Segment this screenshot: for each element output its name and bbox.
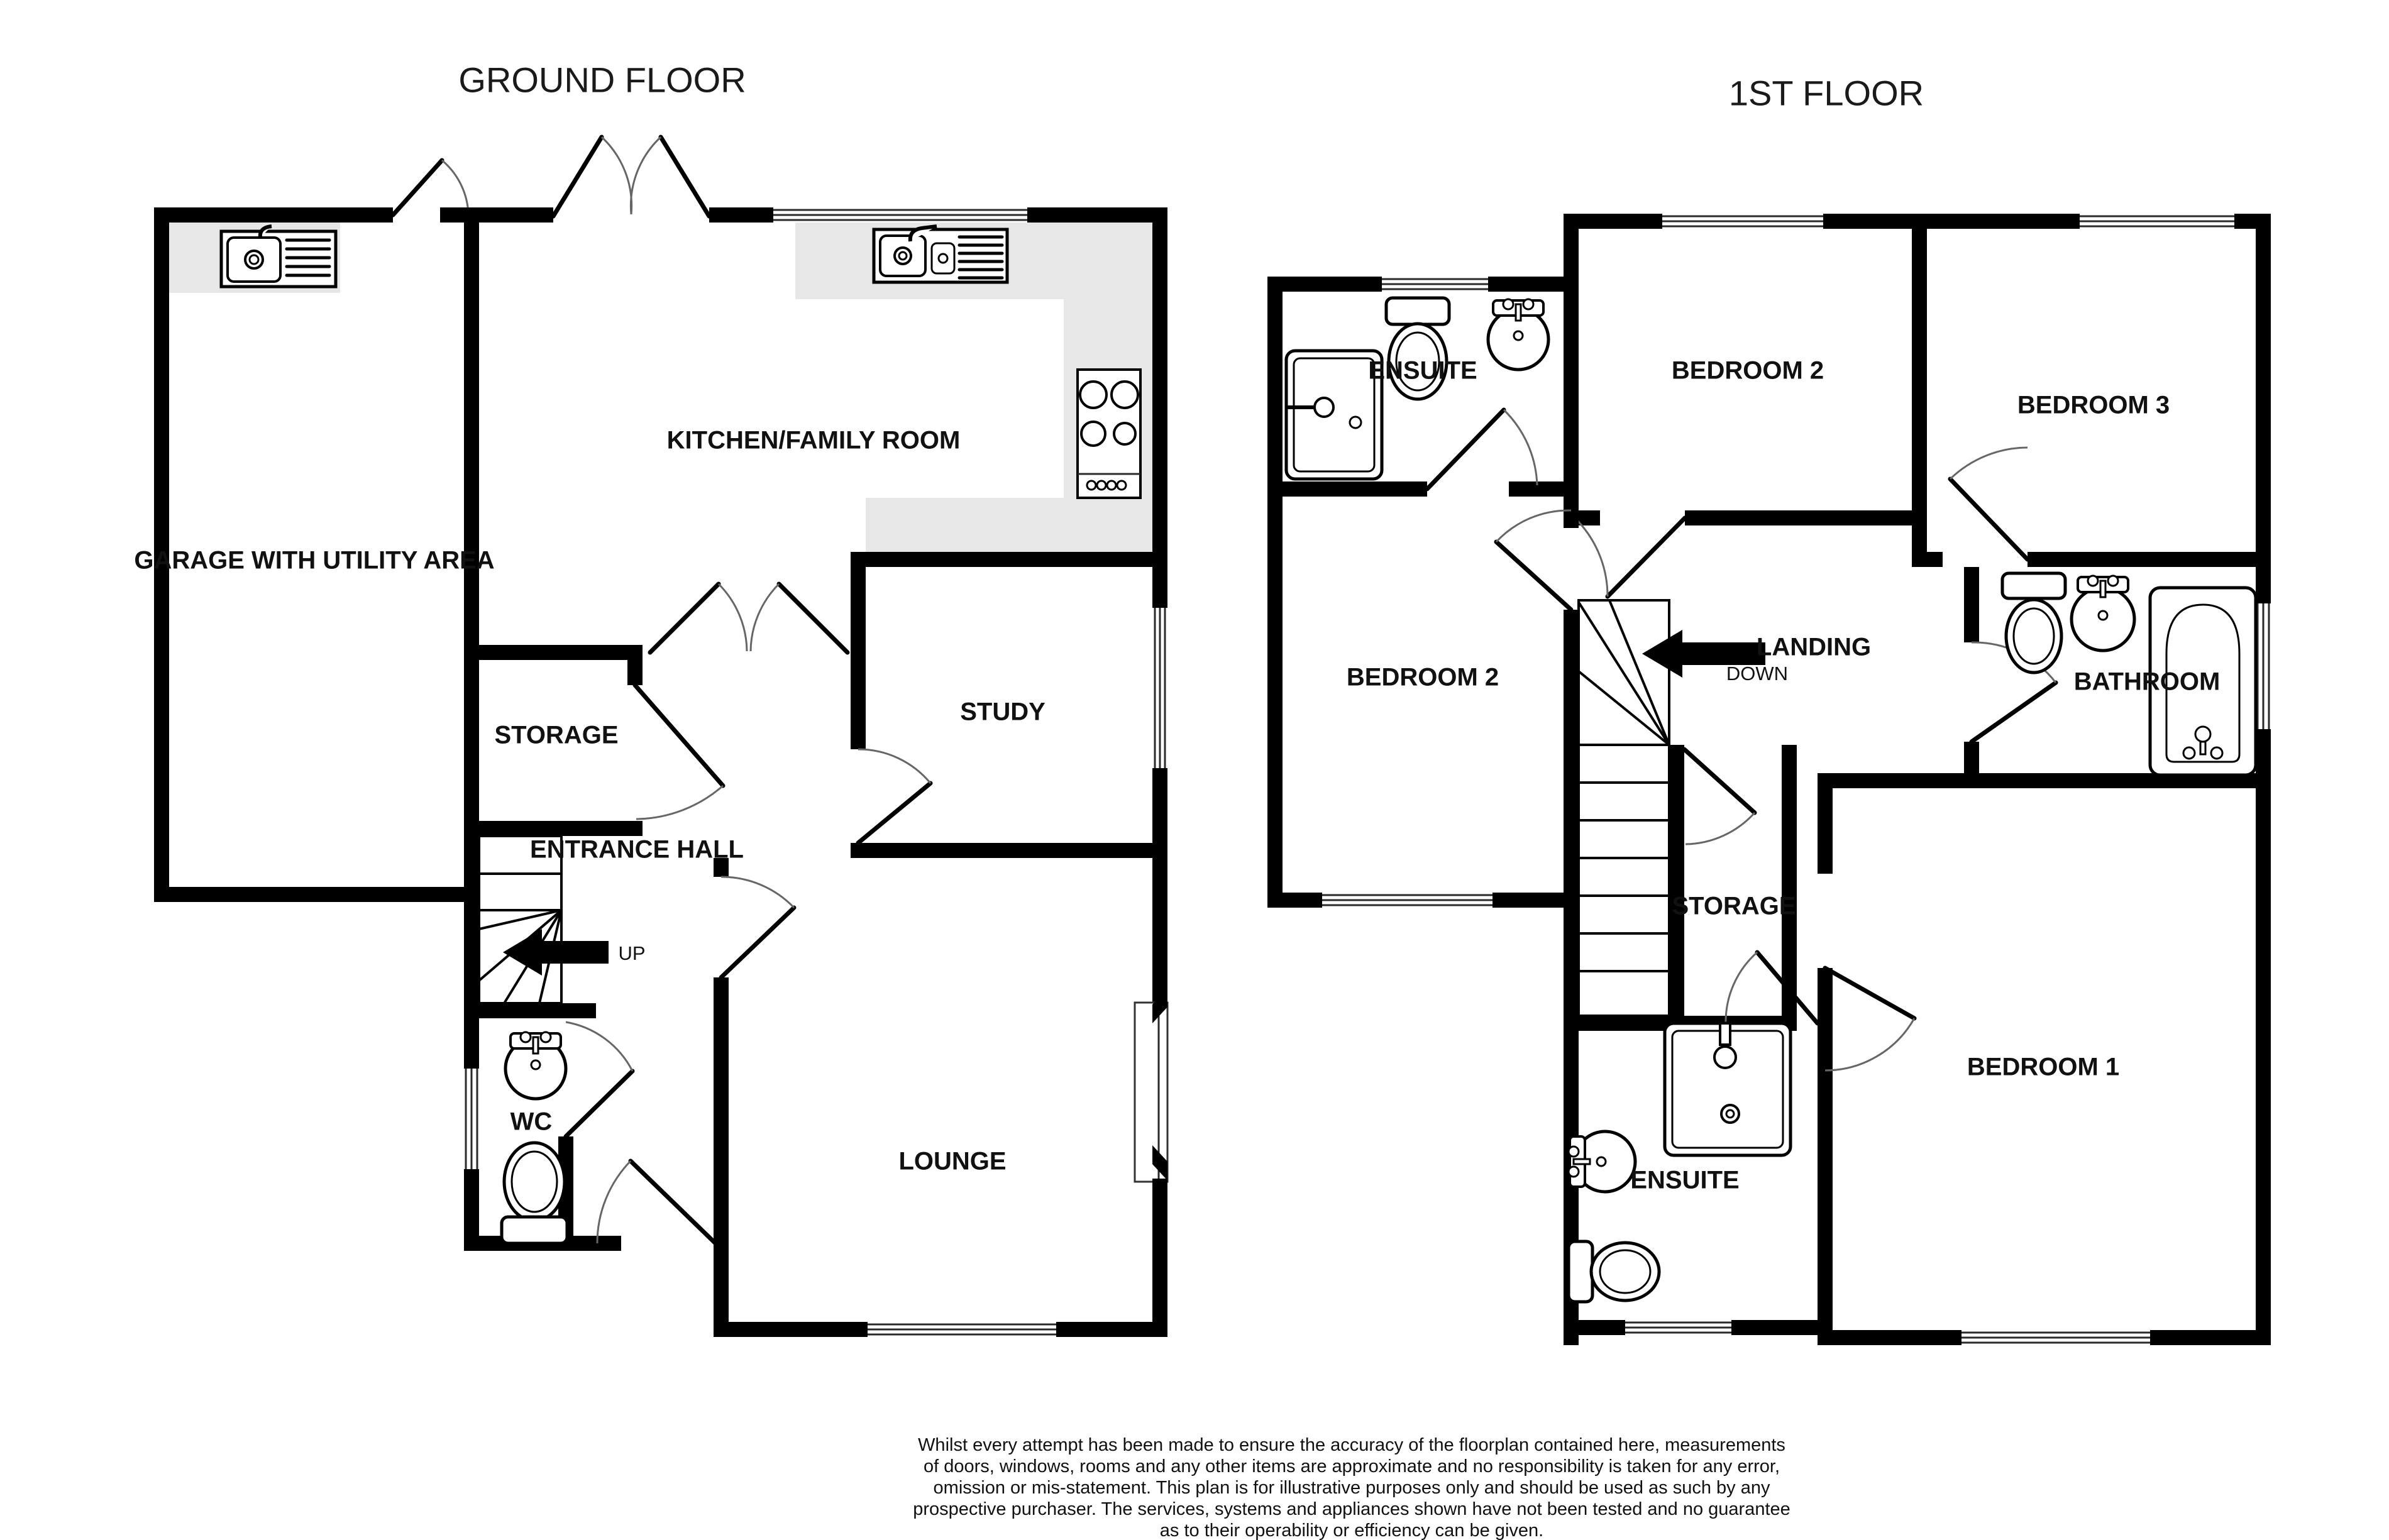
kitchen-sink-icon [874,226,1007,282]
ensuite-bottom-basin-icon [1569,1131,1635,1192]
bathroom-basin-icon [2072,576,2134,651]
bedroom3-window [2080,214,2234,229]
ensuite-bottom-window [1625,1320,1731,1335]
room-label-ensuite-bottom: ENSUITE [1630,1167,1739,1195]
wc-toilet-icon [502,1143,567,1243]
room-label-garage: GARAGE WITH UTILITY AREA [134,547,494,575]
lounge-window [868,1322,1056,1337]
room-label-storage-gf: STORAGE [494,722,618,750]
ground-floor-plan [154,137,1167,1337]
bathroom-toilet-icon [2002,573,2065,673]
disclaimer-line: prospective purchaser. The services, sys… [855,1499,1848,1520]
room-label-landing: LANDING [1757,634,1871,662]
room-label-wc: WC [510,1108,553,1136]
room-label-bedroom3: BEDROOM 3 [2017,392,2170,420]
hob-icon [1078,370,1140,498]
lounge-bay [1135,988,1167,1182]
disclaimer-line: of doors, windows, rooms and any other i… [855,1456,1848,1477]
first-floor-title: 1ST FLOOR [1729,73,1924,114]
ensuite-top-shower-icon [1286,351,1382,479]
room-label-bedroom2-left: BEDROOM 2 [1347,664,1499,692]
wc-basin-icon [505,1032,566,1099]
utility-sink-icon [221,226,336,287]
stairs-first-floor [1579,600,1669,1016]
room-label-entrance-hall: ENTRANCE HALL [530,836,744,864]
disclaimer-line: as to their operability or efficiency ca… [855,1520,1848,1540]
bedroom1-window [1961,1330,2150,1345]
bedroom2-left-window [1322,893,1492,908]
floorplan-drawing [0,0,2389,1540]
disclaimer-line: omission or mis-statement. This plan is … [855,1477,1848,1499]
ensuite-bottom-shower-icon [1665,1023,1790,1155]
room-label-lounge: LOUNGE [898,1148,1006,1176]
kitchen-window [773,207,1027,223]
disclaimer: Whilst every attempt has been made to en… [855,1434,1848,1540]
disclaimer-line: Whilst every attempt has been made to en… [855,1434,1848,1456]
room-label-study: STUDY [960,698,1046,727]
room-label-storage-1f: STORAGE [1672,893,1796,921]
ensuite-top-window [1382,277,1488,292]
bathroom-window [2256,603,2271,729]
study-window [1152,608,1167,768]
room-label-ensuite-top: ENSUITE [1368,357,1477,385]
floorplan-page: GROUND FLOOR 1ST FLOOR KITCHEN/FAMILY RO… [0,0,2389,1540]
room-label-bathroom: BATHROOM [2074,668,2221,696]
room-label-kitchen: KITCHEN/FAMILY ROOM [667,427,961,455]
ground-floor-title: GROUND FLOOR [458,60,746,101]
kitchen-counter-return [866,498,1064,553]
bedroom2-top-window [1662,214,1823,229]
room-label-bedroom2-top: BEDROOM 2 [1672,357,1824,385]
stairs-up-label: UP [618,942,645,965]
stairs-down-label: DOWN [1726,663,1788,685]
room-label-bedroom1: BEDROOM 1 [1967,1053,2119,1082]
wc-window [464,1069,479,1169]
ensuite-top-basin-icon [1488,299,1548,370]
ensuite-bottom-toilet-icon [1569,1241,1659,1302]
